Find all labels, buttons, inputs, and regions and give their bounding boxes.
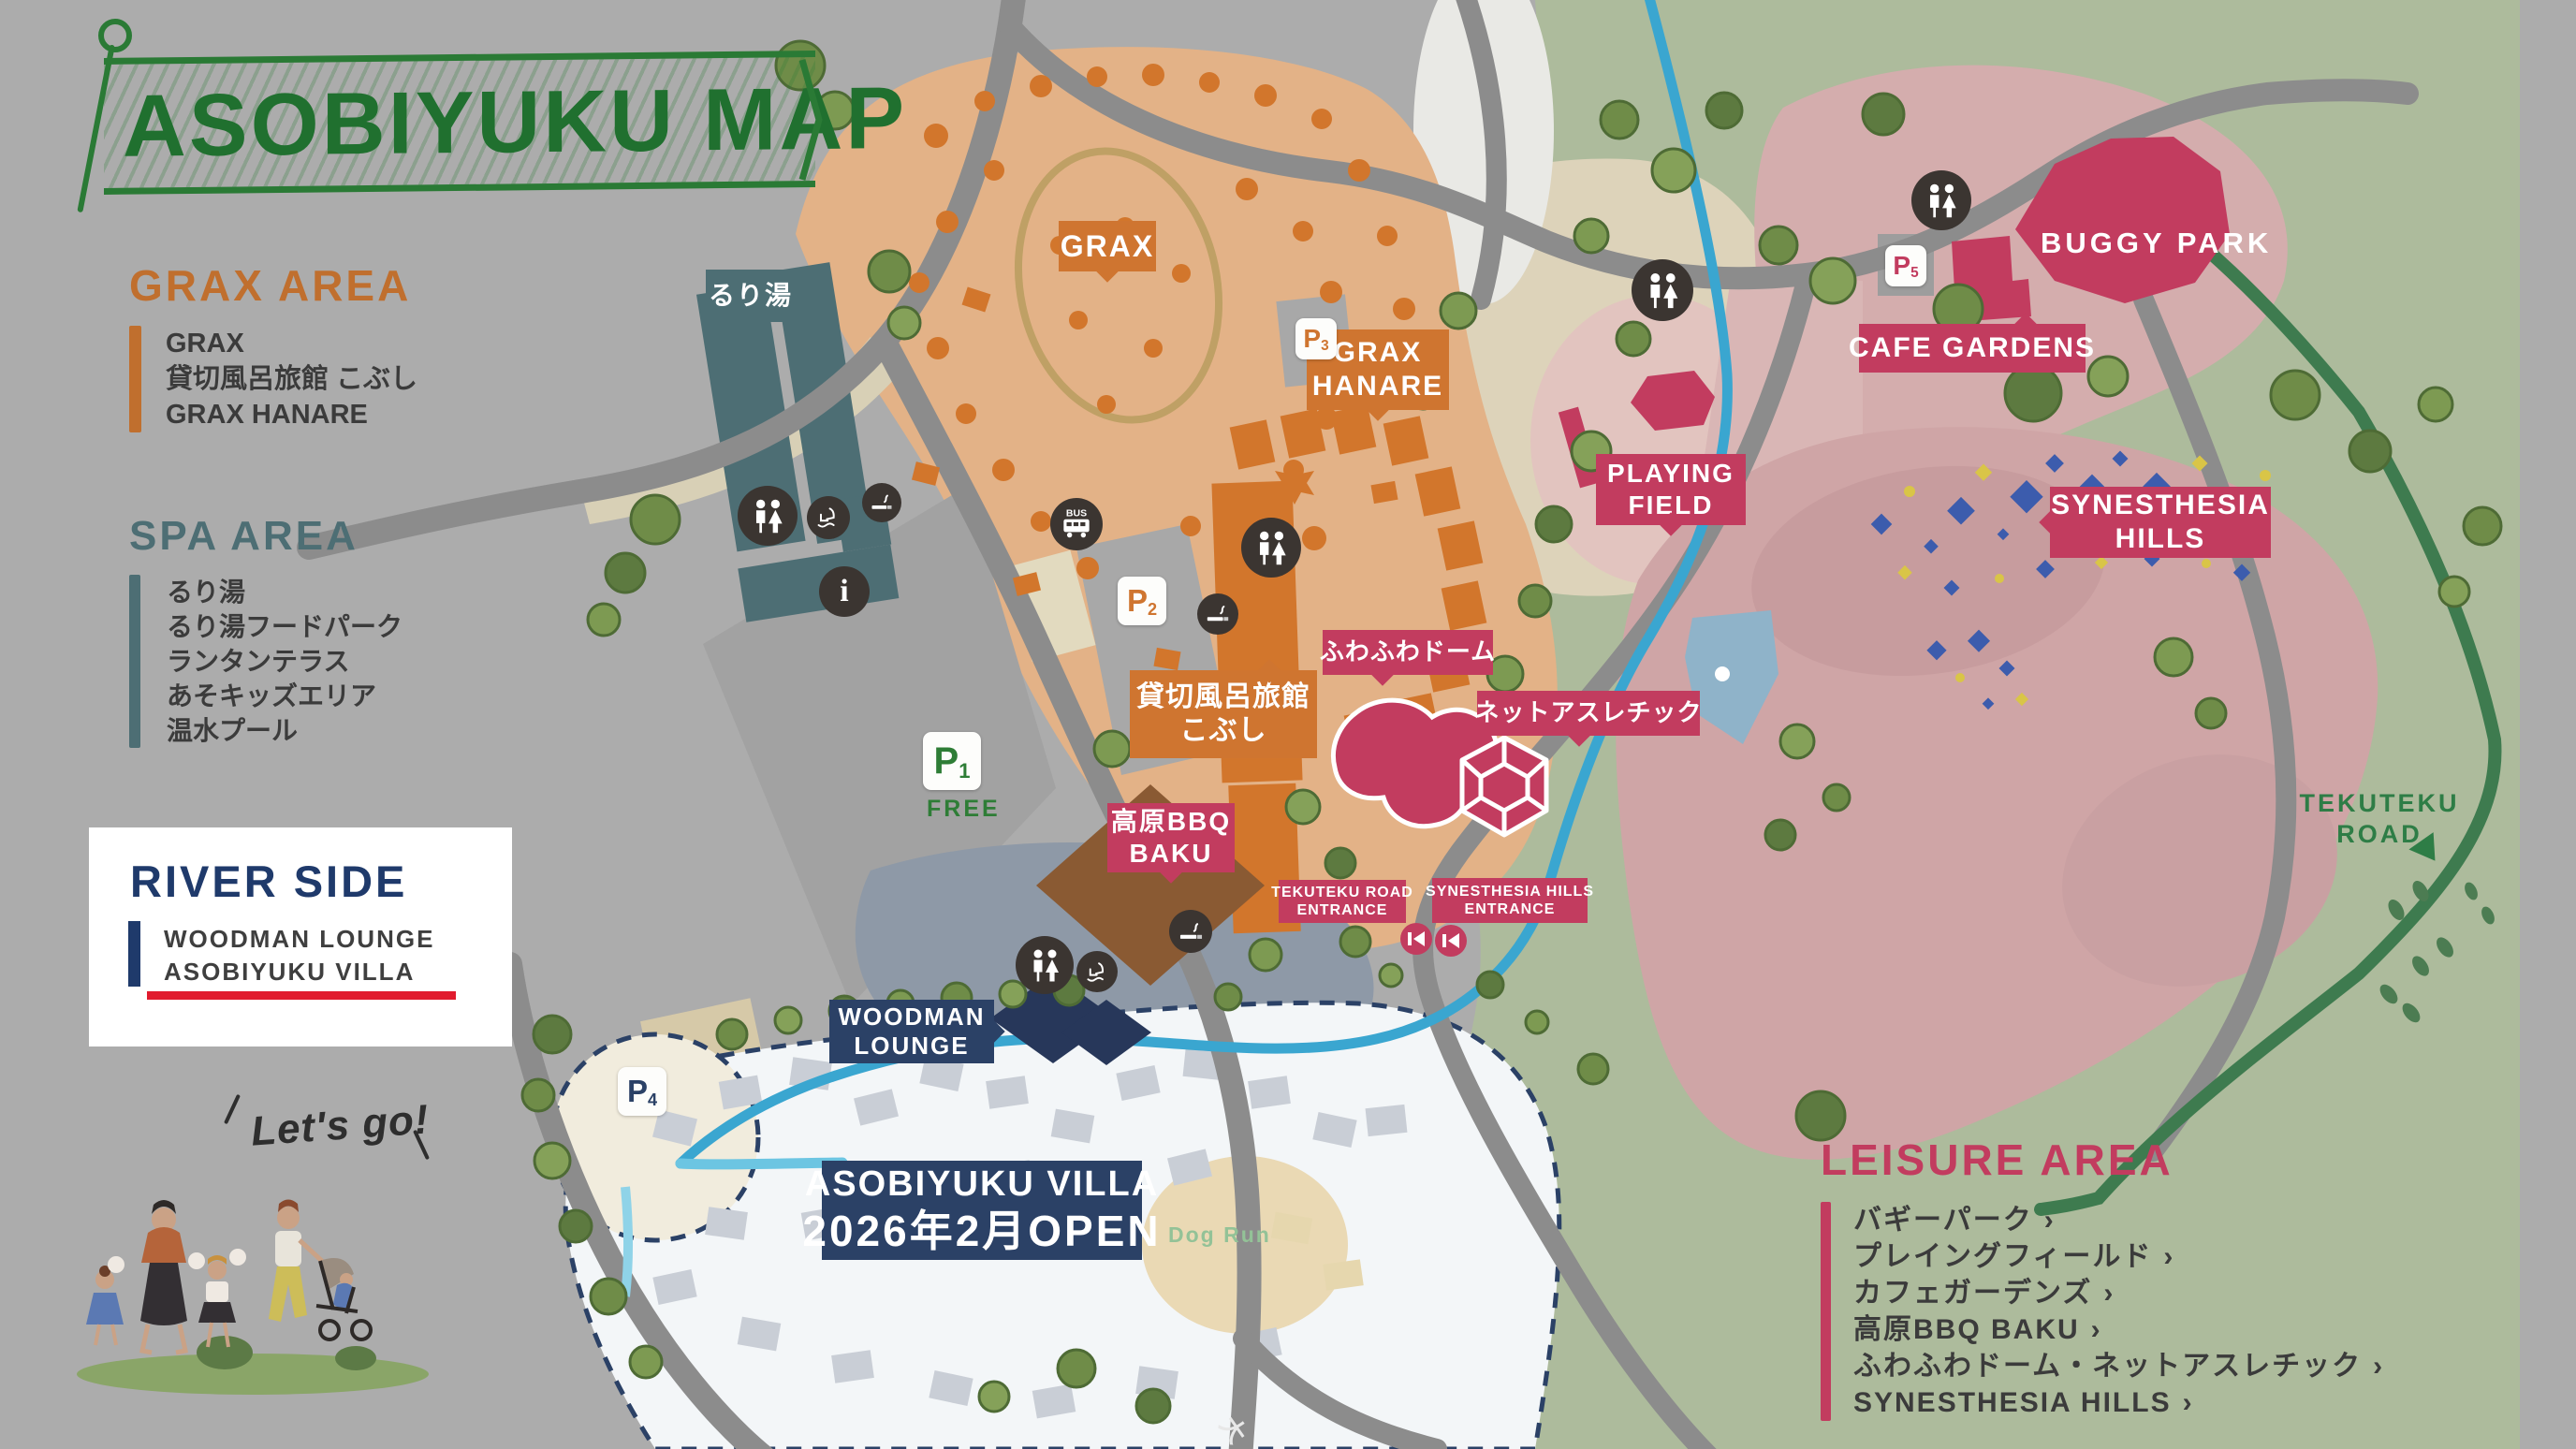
legend-item: 温水プール xyxy=(167,713,402,748)
toilet-icon xyxy=(738,486,798,546)
parking-badge-p3: P3 xyxy=(1295,318,1337,359)
legend-item: るり湯 xyxy=(167,575,402,609)
smoking-area-icon xyxy=(1169,910,1212,953)
toilet-icon xyxy=(1632,259,1693,321)
toilet-icon xyxy=(1911,170,1971,230)
legend-item: ASOBIYUKU VILLA xyxy=(164,956,434,988)
parking-badge-p4: P4 xyxy=(618,1067,666,1116)
leisure-area-heading: LEISURE AREA xyxy=(1821,1134,2384,1185)
map-label-kobushi: 貸切風呂旅館こぶし xyxy=(1130,670,1317,758)
legend-leisure-area: LEISURE AREA バギーパーク› プレイングフィールド› カフェガーデン… xyxy=(1821,1134,2384,1421)
svg-text:BUS: BUS xyxy=(1066,508,1087,520)
leisure-area-bar xyxy=(1821,1202,1831,1421)
flag-notch-icon xyxy=(798,58,823,182)
map-label-buggy-park: BUGGY PARK xyxy=(2041,227,2272,260)
foot-bath-icon xyxy=(807,496,850,539)
spa-area-bar xyxy=(129,575,140,748)
information-icon: i xyxy=(819,566,870,617)
chevron-right-icon: › xyxy=(2091,1314,2102,1345)
map-label-grax: GRAX xyxy=(1059,221,1156,271)
net-athletic-gem xyxy=(1462,738,1546,835)
grax-area-heading: GRAX AREA xyxy=(129,260,417,311)
legend-item: WOODMAN LOUNGE xyxy=(164,923,434,956)
family-illustration xyxy=(75,1175,431,1404)
map-label-synesthesia-hills: SYNESTHESIAHILLS xyxy=(2050,487,2271,558)
chevron-right-icon: › xyxy=(2183,1387,2194,1418)
parking-badge-p1: P1 xyxy=(923,732,981,790)
bus-stop-icon: BUS xyxy=(1050,498,1103,550)
chevron-right-icon: › xyxy=(2163,1241,2174,1272)
leisure-link-playing-field[interactable]: プレイングフィールド› xyxy=(1853,1238,2384,1275)
legend-item: GRAX xyxy=(166,326,417,361)
map-label-bbq-baku: 高原BBQBAKU xyxy=(1107,803,1235,872)
foot-wash-icon xyxy=(1076,951,1118,992)
river-side-bar xyxy=(128,921,140,987)
legend-item: ランタンテラス xyxy=(167,644,402,679)
legend-grax-area: GRAX AREA GRAX 貸切風呂旅館 こぶし GRAX HANARE xyxy=(129,260,417,432)
legend-river-side-highlight: RIVER SIDE WOODMAN LOUNGE ASOBIYUKU VILL… xyxy=(89,827,512,1046)
chevron-right-icon: › xyxy=(2103,1278,2115,1309)
toilet-icon xyxy=(1016,936,1074,994)
map-label-asobiyuku-villa: ASOBIYUKU VILLA 2026年2月OPEN xyxy=(822,1161,1142,1260)
page-title: ASOBIYUKU MAP xyxy=(123,67,907,177)
map-label-fuwafuwa-dome: ふわふわドーム xyxy=(1323,630,1493,675)
toilet-icon xyxy=(1241,518,1301,578)
river-side-heading: RIVER SIDE xyxy=(130,856,407,907)
map-label-net-athletic: ネットアスレチック xyxy=(1477,691,1700,736)
leisure-link-synesthesia-hills[interactable]: SYNESTHESIA HILLS› xyxy=(1853,1384,2384,1421)
legend-item: あそキッズエリア xyxy=(167,679,402,713)
flag-pin-icon xyxy=(98,19,132,52)
grax-area-bar xyxy=(129,326,141,432)
legend-item: 貸切風呂旅館 こぶし xyxy=(166,361,417,397)
entrance-marker-icon xyxy=(1400,923,1432,955)
map-label-playing-field: PLAYINGFIELD xyxy=(1596,454,1746,525)
spa-area-heading: SPA AREA xyxy=(129,513,402,560)
leisure-link-buggy-park[interactable]: バギーパーク› xyxy=(1853,1202,2384,1238)
chevron-right-icon: › xyxy=(2373,1351,2384,1382)
parking-badge-p5: P5 xyxy=(1885,245,1926,286)
parking-p1-free-text: FREE xyxy=(927,796,1001,823)
map-label-woodman-lounge: WOODMANLOUNGE xyxy=(829,1000,994,1063)
map-label-cafe-gardens: CAFE GARDENS xyxy=(1859,324,2086,373)
chevron-right-icon: › xyxy=(2044,1205,2056,1236)
highlight-underline xyxy=(147,991,456,1000)
legend-item: GRAX HANARE xyxy=(166,397,417,432)
map-label-dog-run: Dog Run xyxy=(1168,1222,1271,1248)
map-label-synesthesia-entrance: SYNESTHESIA HILLSENTRANCE xyxy=(1432,878,1588,923)
legend-item: るり湯フードパーク xyxy=(167,609,402,644)
entrance-marker-icon xyxy=(1435,925,1467,957)
smoking-area-icon xyxy=(1197,593,1238,635)
leisure-link-bbq-baku[interactable]: 高原BBQ BAKU› xyxy=(1853,1311,2384,1348)
legend-spa-area: SPA AREA るり湯 るり湯フードパーク ランタンテラス あそキッズエリア … xyxy=(129,513,402,748)
leisure-link-cafe-gardens[interactable]: カフェガーデンズ› xyxy=(1853,1275,2384,1311)
smoking-area-icon xyxy=(862,483,901,522)
map-title-flag: ASOBIYUKU MAP xyxy=(89,17,819,204)
parking-badge-p2: P2 xyxy=(1118,577,1166,625)
asobiyuku-map-screenshot: ASOBIYUKU MAP GRAX AREA GRAX 貸切風呂旅館 こぶし … xyxy=(0,0,2576,1449)
map-label-tekuteku-entrance: TEKUTEKU ROADENTRANCE xyxy=(1279,880,1406,923)
leisure-link-fuwafuwa-net[interactable]: ふわふわドーム・ネットアスレチック› xyxy=(1853,1348,2384,1384)
map-label-ruriyu: るり湯 xyxy=(706,270,796,322)
